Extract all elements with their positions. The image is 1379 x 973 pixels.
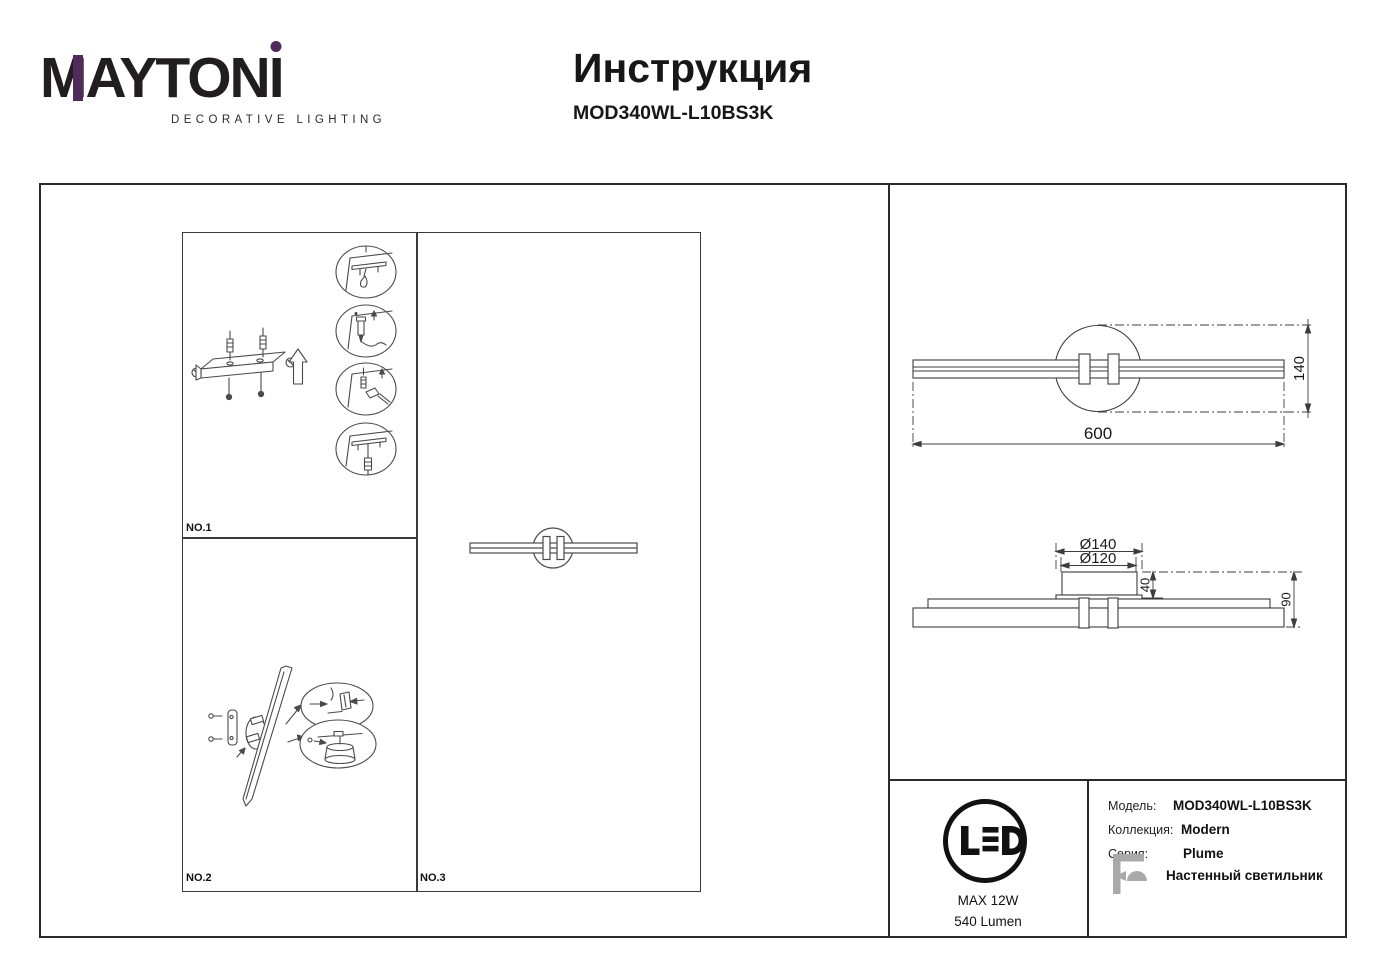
model-label: Модель: [1108, 799, 1156, 813]
step-callout-drill [336, 305, 396, 357]
bar-clamp [1108, 354, 1119, 384]
logo-tagline: DECORATIVE LIGHTING [171, 114, 386, 126]
logo-purple-dot-icon [270, 41, 281, 52]
bar-clamp [1079, 598, 1089, 628]
collection-value: Modern [1181, 822, 1230, 837]
screw-icon [258, 373, 263, 397]
screw-icon [226, 378, 231, 400]
bar-clamp [543, 537, 550, 560]
wall-plate-drawing [209, 710, 245, 757]
lower-bar [913, 608, 1284, 627]
series-value: Plume [1183, 846, 1224, 861]
model-value: MOD340WL-L10BS3K [1173, 798, 1312, 813]
brand-wordmark: MAYTONI [40, 50, 283, 107]
dimension-depth-40: 40 [1137, 578, 1152, 592]
wall-anchor-icon [227, 331, 233, 360]
dimension-depth-90: 90 [1278, 592, 1293, 606]
product-info-box: MAX 12W 540 Lumen Модель: MOD340WL-L10BS… [889, 779, 1347, 938]
bar-clamp [1108, 598, 1118, 628]
step-callout-screwdriver [336, 423, 396, 475]
led-letter-e-bar [983, 836, 999, 842]
maytoni-logo: MAYTONI [40, 50, 283, 107]
bar-clamp [1079, 354, 1090, 384]
mounting-bracket-drawing [192, 328, 307, 400]
canopy-base [1062, 572, 1137, 595]
logo-letter-i: I [269, 50, 283, 107]
page-title: Инструкция [573, 48, 812, 89]
no1-bracket-mounting-diagram [182, 232, 416, 538]
instruction-sheet: MAYTONI DECORATIVE LIGHTING Инструкция M… [0, 0, 1379, 973]
step-callout-canopy [300, 720, 376, 768]
led-letter-l [961, 826, 980, 855]
led-letter-e-bar [983, 846, 999, 852]
fixture-type-value: Настенный светильник [1166, 868, 1323, 883]
page-model-number: MOD340WL-L10BS3K [573, 102, 812, 125]
dimension-width-600: 600 [1084, 424, 1112, 443]
led-letter-e-bar [983, 827, 999, 833]
side-view-dimension-drawing: Ø140 Ø120 40 90 [890, 520, 1347, 645]
step-callout-mark-wall [336, 246, 396, 298]
light-bar [913, 360, 1284, 378]
dimension-diameter-120: Ø120 [1080, 550, 1117, 567]
no2-fixture-mounting-diagram [182, 538, 416, 892]
spec-table: Модель: MOD340WL-L10BS3K Коллекция: Mode… [1087, 781, 1347, 938]
wall-lamp-icon [1113, 854, 1151, 896]
light-bar-drawing [243, 666, 292, 806]
logo-letters: AYTON [85, 46, 268, 110]
no3-finished-fixture-diagram [416, 232, 701, 892]
collection-label: Коллекция: [1108, 823, 1173, 837]
front-view-dimension-drawing: 140 600 [890, 300, 1347, 462]
led-badge-icon [941, 797, 1029, 885]
max-power-label: MAX 12W [889, 893, 1087, 908]
lumen-label: 540 Lumen [889, 914, 1087, 929]
upper-bar [928, 599, 1270, 608]
logo-letter-m: M [40, 50, 85, 107]
bar-clamp [557, 537, 564, 560]
wall-anchor-icon [260, 328, 266, 357]
dimension-height-140: 140 [1291, 356, 1308, 381]
canopy-base-plate [1056, 595, 1142, 599]
title-block: Инструкция MOD340WL-L10BS3K [573, 48, 812, 125]
step-callout-insert-anchor [336, 363, 396, 415]
